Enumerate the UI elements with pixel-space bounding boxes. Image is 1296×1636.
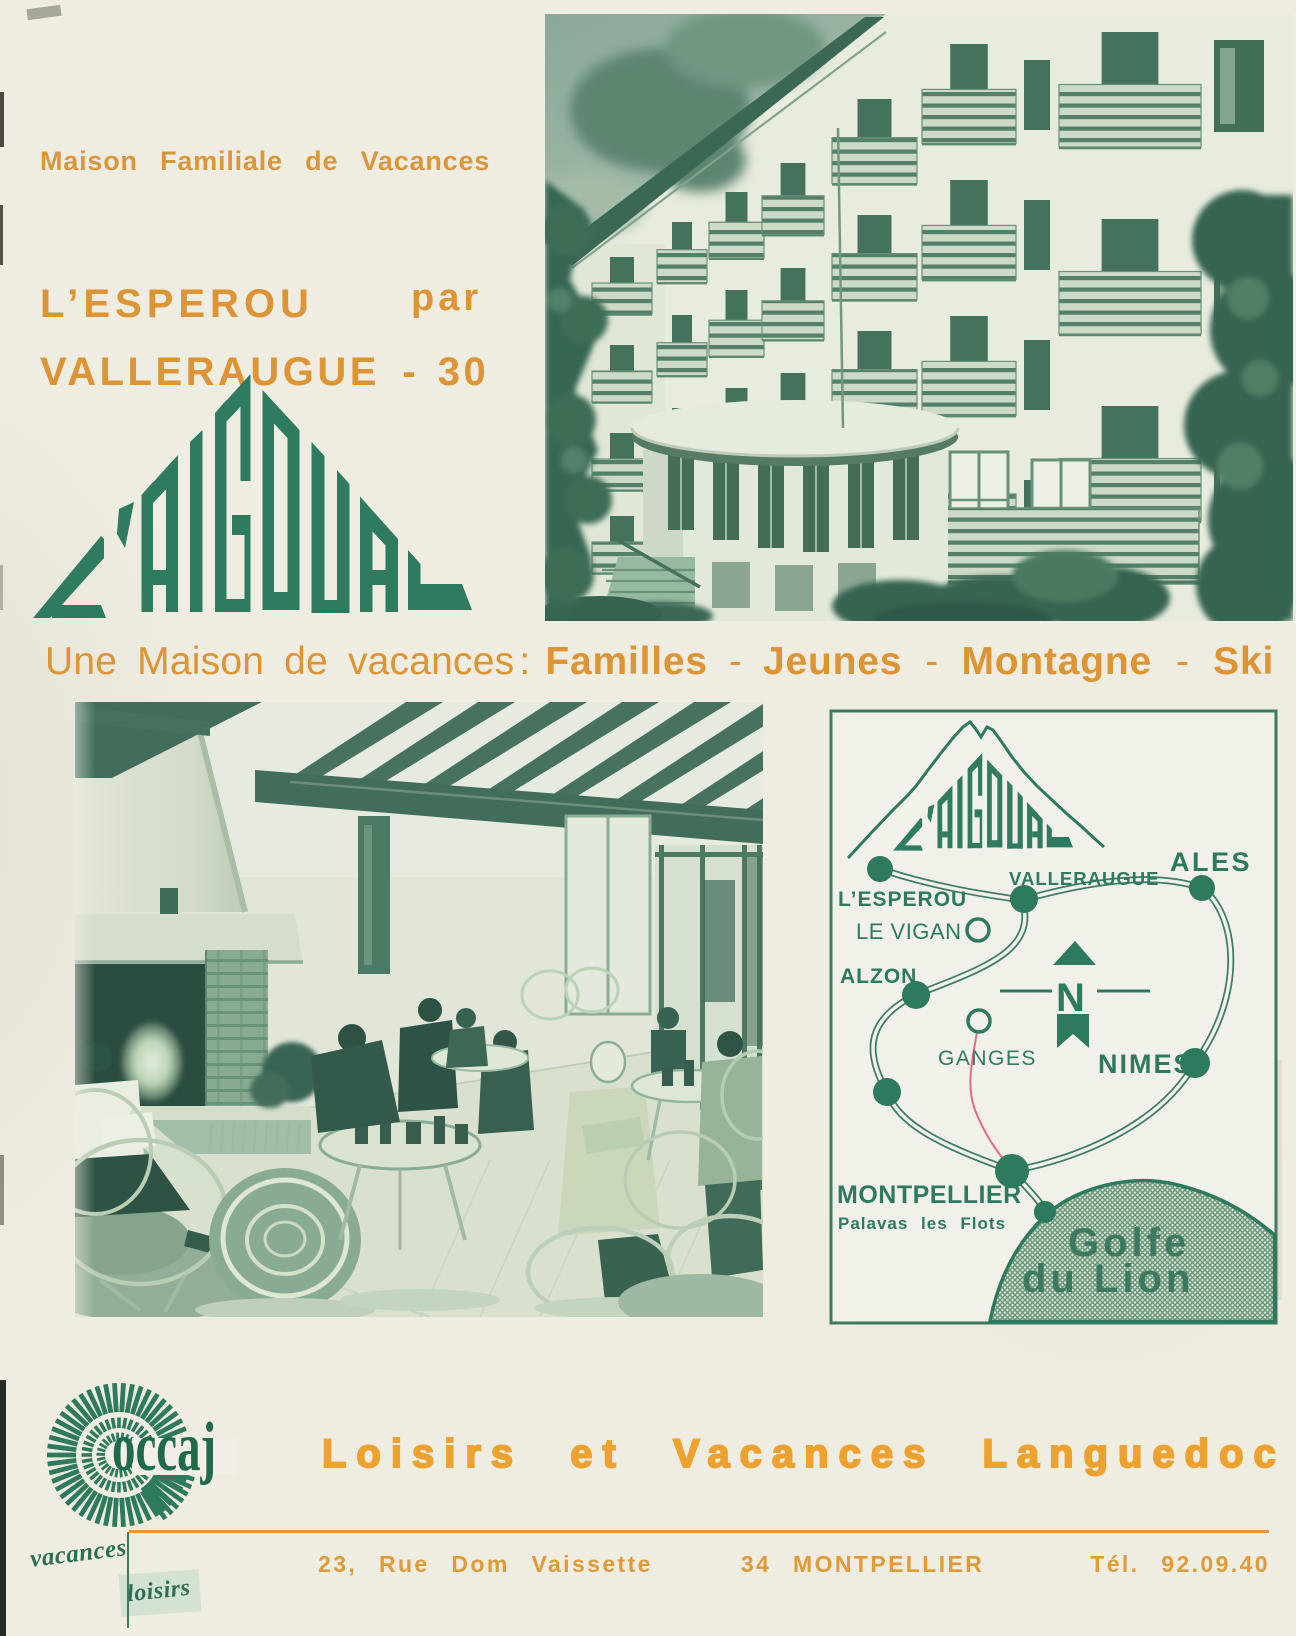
svg-text:ALZON: ALZON (840, 965, 917, 988)
svg-text:Palavas les Flots: Palavas les Flots (838, 1214, 1006, 1233)
svg-text:VALLERAUGUE: VALLERAUGUE (1009, 868, 1159, 889)
svg-text:NIMES: NIMES (1098, 1049, 1194, 1079)
svg-text:L’ESPEROU: L’ESPEROU (838, 888, 967, 911)
svg-text:N: N (1056, 976, 1085, 1020)
svg-text:LE VIGAN: LE VIGAN (856, 919, 961, 944)
svg-text:ALES: ALES (1170, 847, 1252, 877)
svg-text:du Lion: du Lion (1022, 1257, 1194, 1301)
svg-text:GANGES: GANGES (938, 1047, 1037, 1070)
svg-text:MONTPELLIER: MONTPELLIER (837, 1181, 1022, 1209)
